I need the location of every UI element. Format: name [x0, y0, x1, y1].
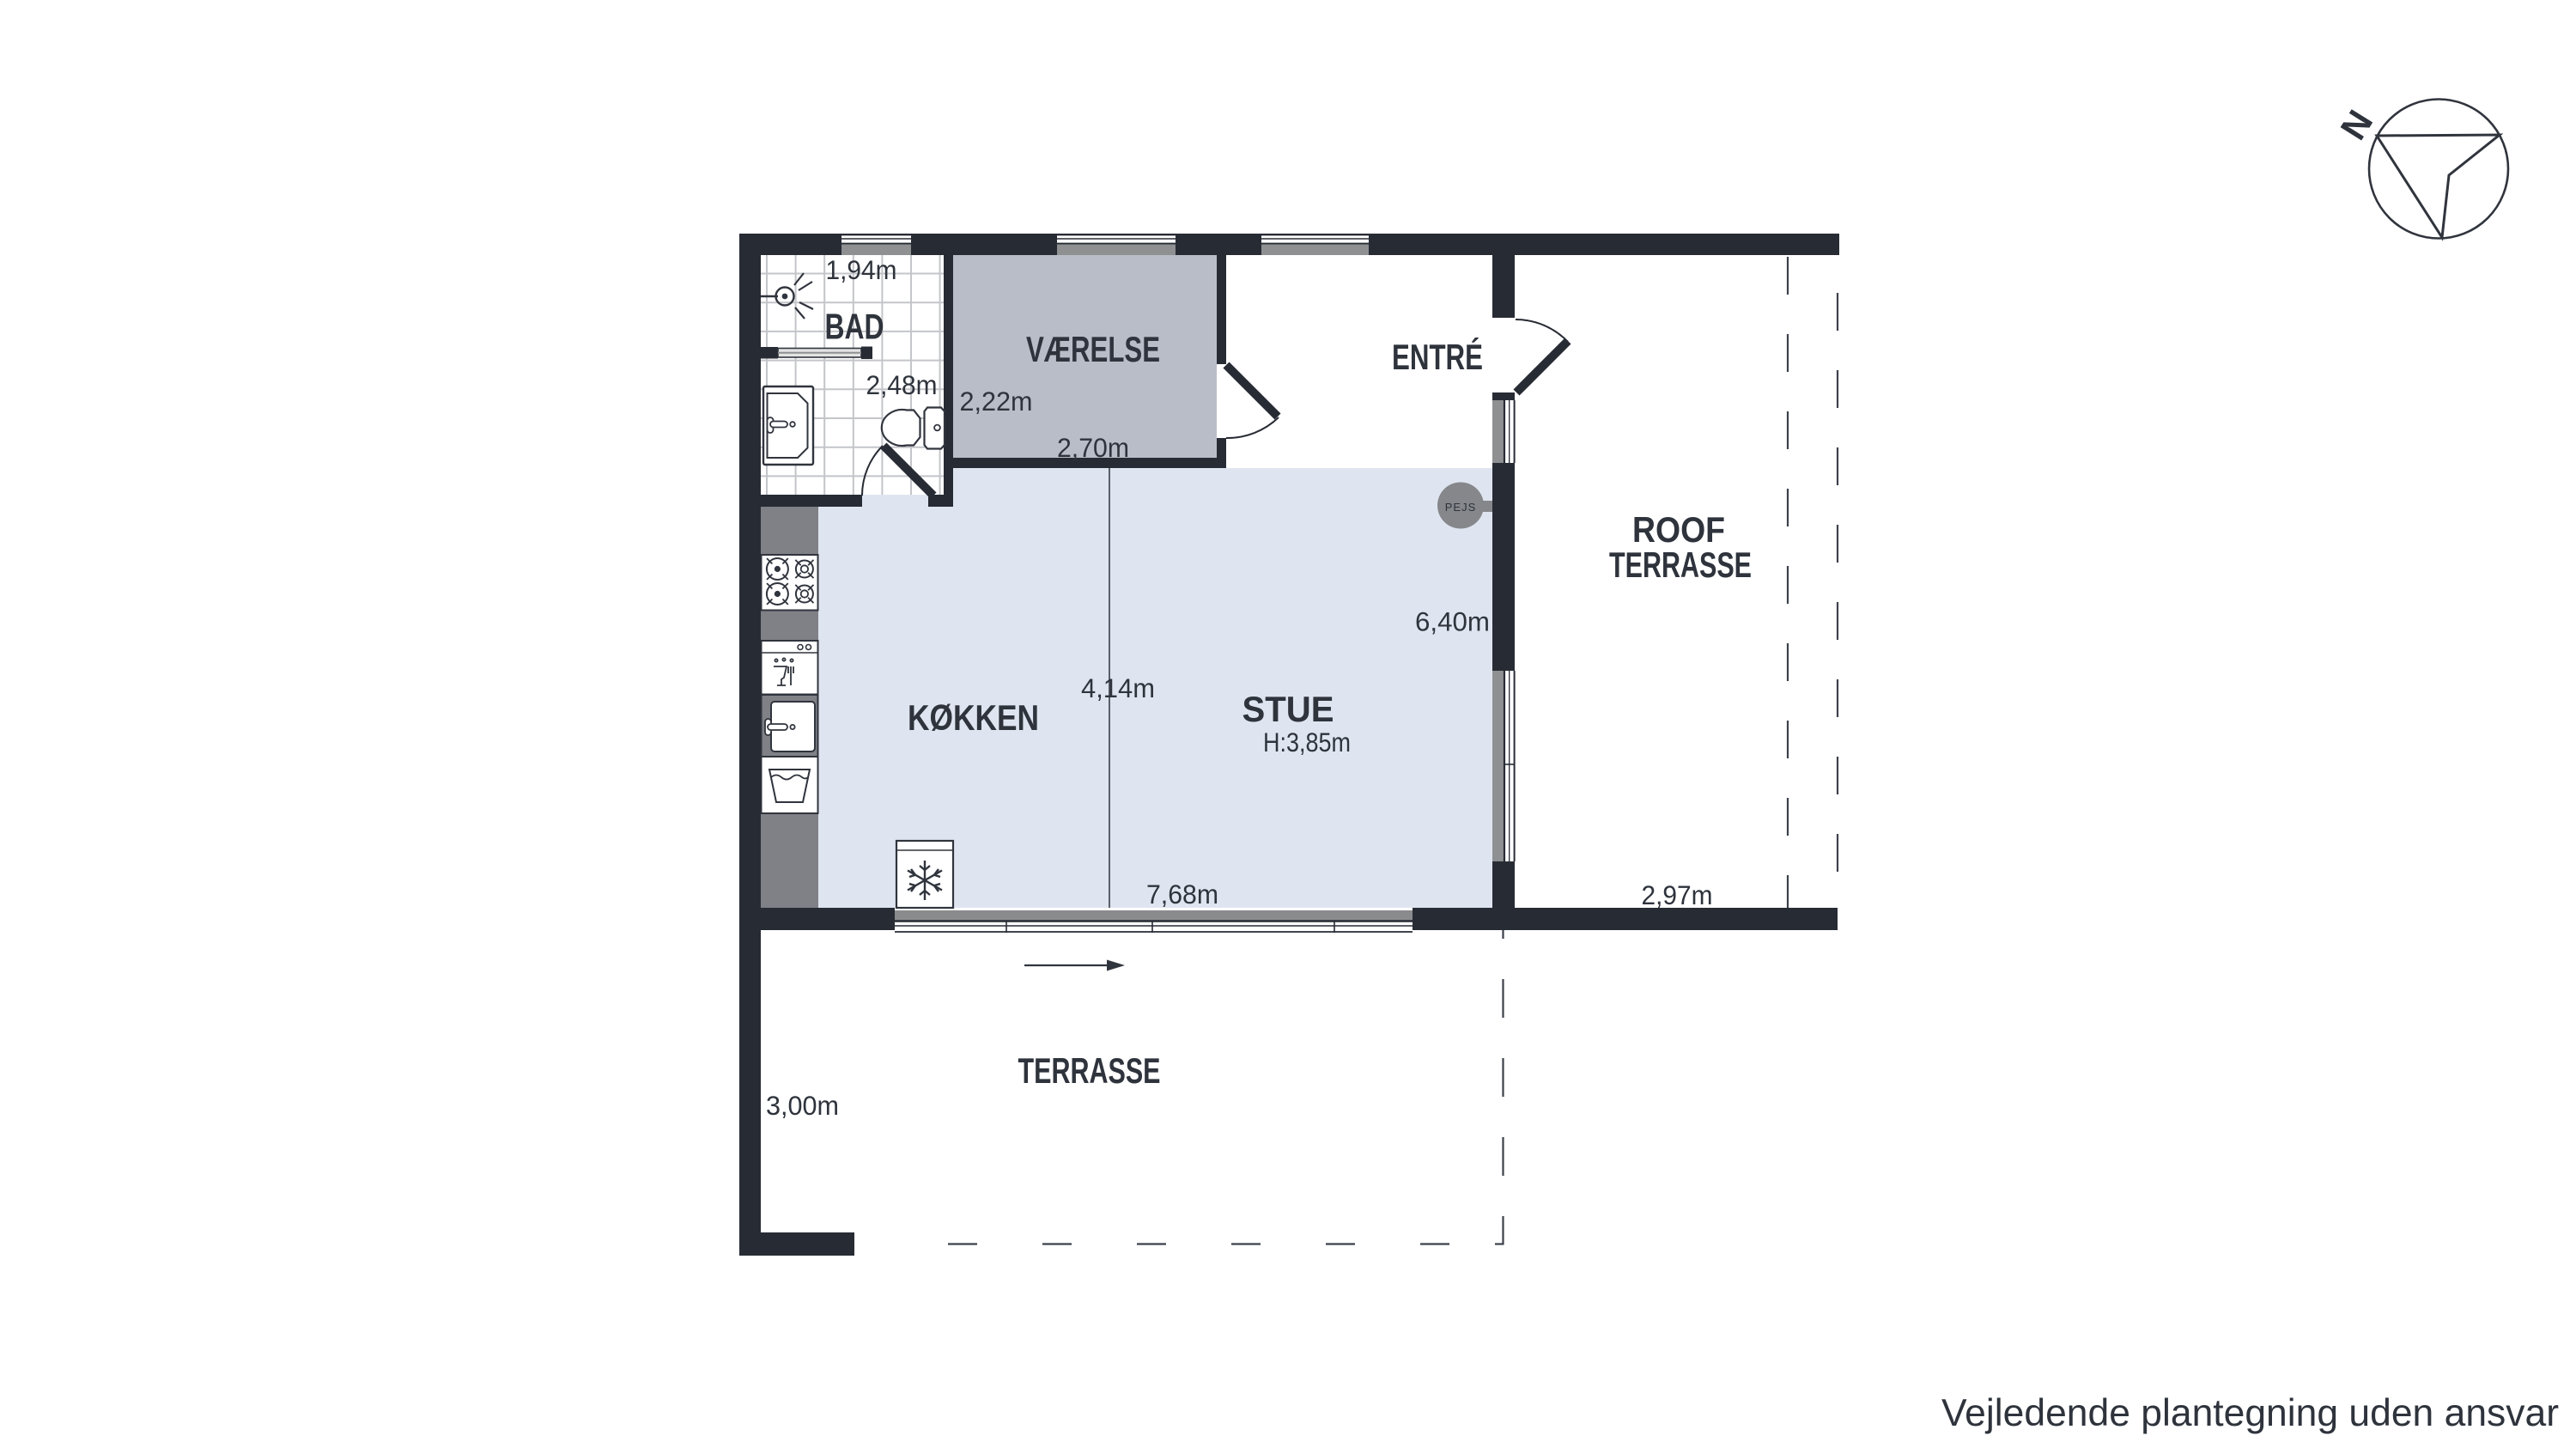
- svg-text:N: N: [2332, 103, 2380, 147]
- svg-text:Vejledende plantegning uden an: Vejledende plantegning uden ansvar: [1941, 1392, 2559, 1434]
- svg-text:PEJS: PEJS: [1445, 501, 1477, 514]
- svg-text:ROOF: ROOF: [1632, 509, 1725, 550]
- svg-text:H:3,85m: H:3,85m: [1263, 727, 1351, 757]
- svg-text:4,14m: 4,14m: [1081, 672, 1155, 703]
- svg-text:3,00m: 3,00m: [766, 1090, 839, 1121]
- svg-text:1,94m: 1,94m: [826, 254, 897, 285]
- svg-text:TERRASSE: TERRASSE: [1609, 545, 1752, 585]
- svg-text:2,97m: 2,97m: [1642, 879, 1713, 910]
- svg-text:BAD: BAD: [825, 307, 884, 347]
- svg-text:TERRASSE: TERRASSE: [1018, 1050, 1161, 1091]
- svg-text:2,70m: 2,70m: [1057, 432, 1129, 463]
- svg-text:2,22m: 2,22m: [960, 386, 1033, 417]
- svg-text:KØKKEN: KØKKEN: [908, 697, 1039, 738]
- svg-text:VÆRELSE: VÆRELSE: [1026, 329, 1160, 369]
- svg-text:STUE: STUE: [1242, 689, 1334, 729]
- svg-text:7,68m: 7,68m: [1146, 879, 1218, 910]
- svg-text:6,40m: 6,40m: [1415, 606, 1490, 637]
- svg-text:ENTRÉ: ENTRÉ: [1392, 337, 1483, 377]
- svg-text:2,48m: 2,48m: [866, 369, 938, 400]
